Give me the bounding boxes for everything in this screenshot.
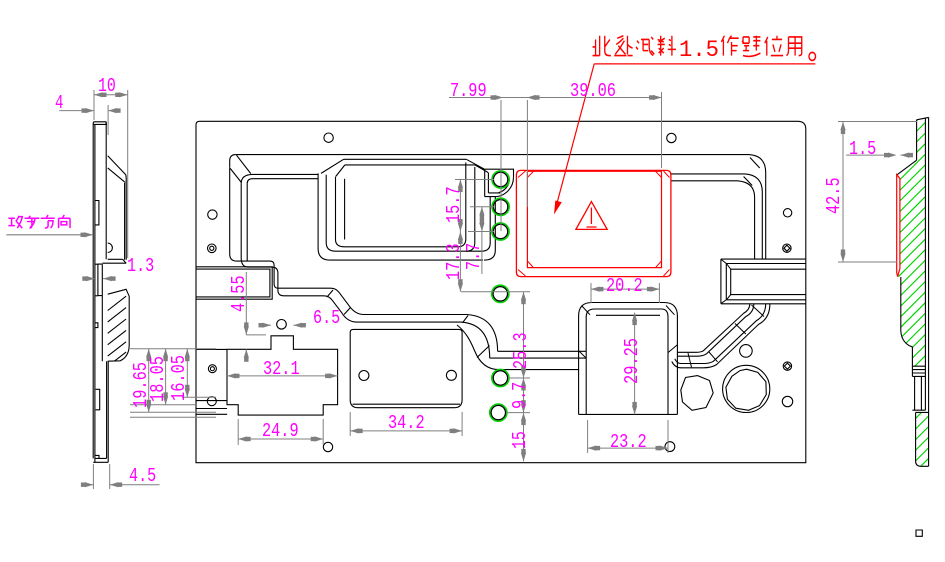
svg-text:15: 15 <box>509 431 531 449</box>
svg-text:7.99: 7.99 <box>450 80 487 102</box>
svg-text:6.5: 6.5 <box>313 307 340 329</box>
svg-text:39.06: 39.06 <box>570 80 616 102</box>
svg-text:32.1: 32.1 <box>263 358 300 380</box>
svg-text:4.5: 4.5 <box>129 465 156 487</box>
svg-text:4.55: 4.55 <box>228 275 250 312</box>
svg-text:10: 10 <box>98 75 116 97</box>
svg-text:25.3: 25.3 <box>510 332 532 369</box>
svg-text:29.25: 29.25 <box>621 338 643 384</box>
svg-text:9.7: 9.7 <box>509 382 531 409</box>
svg-text:34.2: 34.2 <box>388 412 425 434</box>
svg-text:20.2: 20.2 <box>606 275 643 297</box>
svg-text:42.5: 42.5 <box>823 177 845 214</box>
svg-text:1.3: 1.3 <box>127 255 154 277</box>
svg-text:1.5: 1.5 <box>849 138 876 160</box>
svg-text:24.9: 24.9 <box>262 420 299 442</box>
svg-text:7.7: 7.7 <box>463 243 485 270</box>
svg-text:15.7: 15.7 <box>443 186 465 223</box>
svg-text:16.05: 16.05 <box>168 355 190 401</box>
svg-text:18.05: 18.05 <box>147 356 169 402</box>
svg-text:1.5: 1.5 <box>679 37 719 63</box>
svg-text:23.2: 23.2 <box>610 431 647 453</box>
svg-text:4: 4 <box>55 92 63 114</box>
svg-text:17.3: 17.3 <box>443 243 465 280</box>
